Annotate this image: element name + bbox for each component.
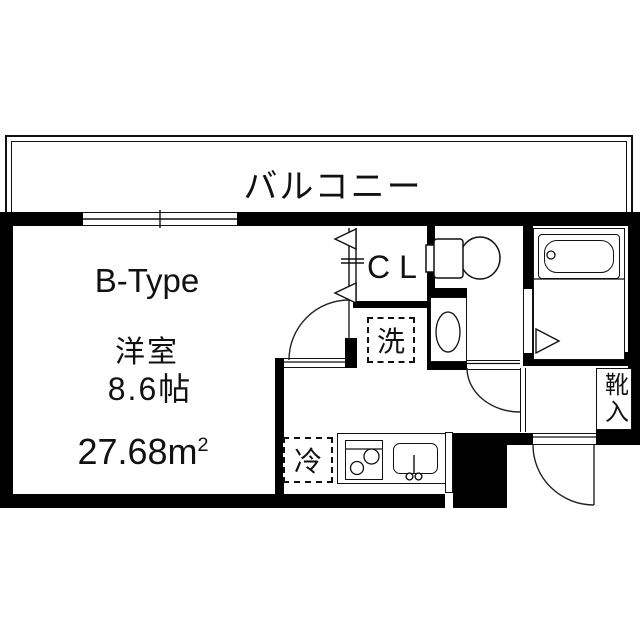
wall-left <box>0 212 13 508</box>
area-unit: m <box>168 431 198 472</box>
closet-label: CL <box>357 249 427 286</box>
washing-machine-space: 洗 <box>367 317 415 363</box>
wall-door-stub <box>345 338 357 368</box>
washroom-door-threshold <box>467 360 520 370</box>
area-unit-exponent: 2 <box>198 434 209 456</box>
balcony-label: バルコニー <box>233 159 433 208</box>
shoe-cabinet: 靴入 <box>596 368 632 430</box>
wall-porch-block <box>453 433 507 508</box>
floor-plan: バルコニー 靴入 洗 冷 B-Type 洋室 8.6帖 27.68m2 <box>0 0 640 640</box>
shoe-cabinet-label: 靴入 <box>597 372 632 426</box>
entrance-door-threshold <box>533 433 596 445</box>
wall-closet-bottom <box>353 301 430 308</box>
window-icon <box>83 212 237 226</box>
main-door-threshold <box>284 358 345 368</box>
kitchen-counter-end <box>445 432 453 493</box>
room-size-label: 8.6帖 <box>50 364 250 410</box>
washroom-door-swing-icon <box>467 368 520 412</box>
wall-porch-strip <box>507 433 533 445</box>
washer-label: 洗 <box>377 320 405 360</box>
area-value: 27.68 <box>77 431 167 472</box>
toilet-icon <box>426 237 500 279</box>
bathroom-door-track <box>523 289 533 353</box>
wall-entrance-right-stub <box>596 430 640 445</box>
entrance-door-swing-icon <box>533 445 594 505</box>
vanity-cabinet <box>430 297 467 362</box>
kitchen-sink-icon <box>393 443 438 474</box>
wall-toilet-divider <box>430 288 467 297</box>
threshold-lines <box>284 362 596 437</box>
wall-bottom <box>0 494 445 508</box>
fridge-space: 冷 <box>283 437 333 483</box>
room-area-label: 27.68m2 <box>43 431 243 473</box>
fridge-label: 冷 <box>294 440 322 480</box>
unit-type-label: B-Type <box>47 262 247 300</box>
wall-bathroom-left <box>523 226 533 290</box>
bathtub-inner <box>544 240 614 273</box>
stove-icon <box>345 440 383 480</box>
entrance-step-line <box>520 368 526 432</box>
main-room-door-swing-icon <box>289 300 349 360</box>
